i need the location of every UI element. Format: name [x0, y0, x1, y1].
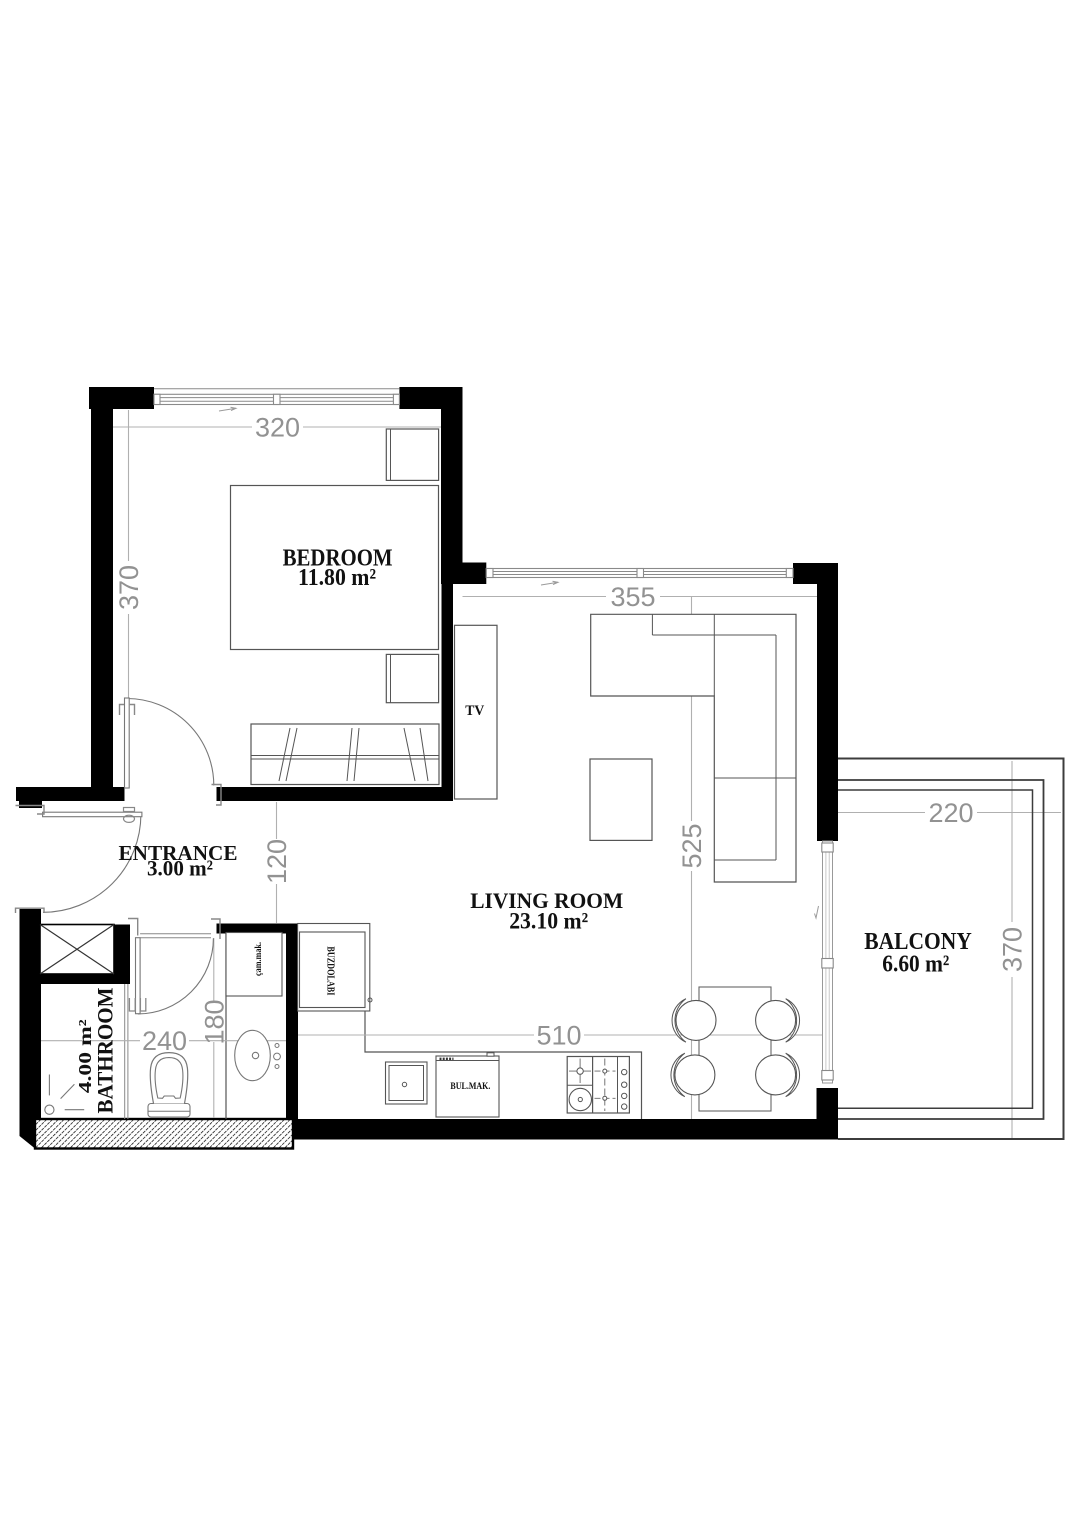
svg-text:180: 180: [199, 999, 229, 1044]
svg-text:BUL.MAK.: BUL.MAK.: [450, 1081, 490, 1091]
svg-text:525: 525: [677, 823, 707, 868]
svg-text:BUZDOLABI: BUZDOLABI: [325, 946, 337, 995]
svg-text:çam.mak.: çam.mak.: [253, 942, 263, 976]
svg-text:320: 320: [255, 413, 300, 443]
svg-text:120: 120: [262, 839, 292, 884]
svg-text:23.10 m²: 23.10 m²: [509, 908, 588, 933]
svg-text:220: 220: [928, 798, 973, 828]
svg-text:355: 355: [610, 582, 655, 612]
svg-text:TV: TV: [465, 703, 484, 719]
svg-text:510: 510: [536, 1021, 581, 1051]
svg-text:6.60 m²: 6.60 m²: [882, 952, 949, 978]
svg-text:BATHROOM: BATHROOM: [93, 987, 118, 1113]
svg-text:11.80 m²: 11.80 m²: [298, 565, 376, 591]
svg-text:240: 240: [142, 1026, 187, 1056]
svg-text:370: 370: [114, 565, 144, 610]
svg-text:370: 370: [998, 927, 1028, 972]
svg-text:3.00 m²: 3.00 m²: [147, 855, 213, 880]
